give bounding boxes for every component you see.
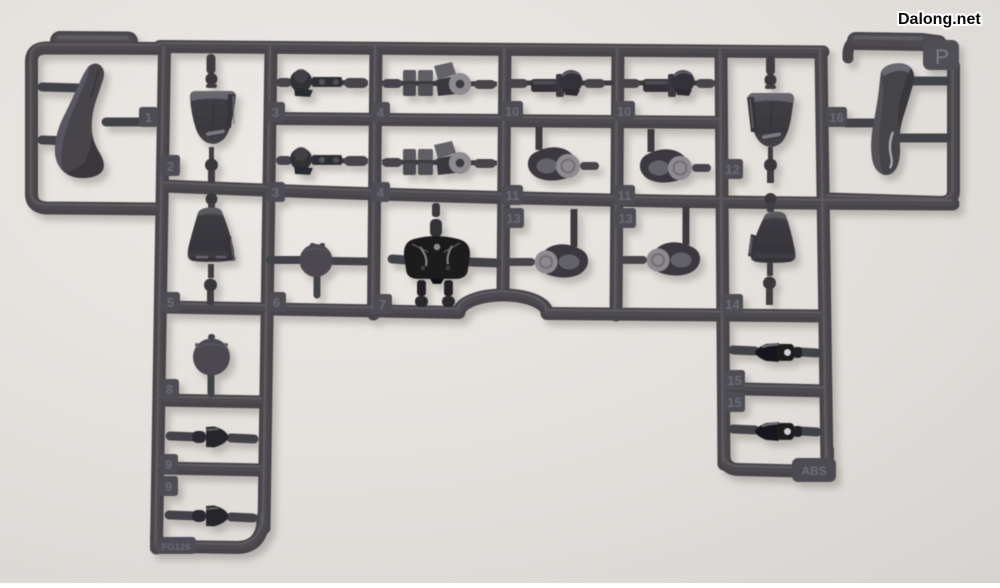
svg-text:8: 8 (166, 382, 173, 397)
svg-text:11: 11 (506, 188, 520, 203)
svg-text:11: 11 (618, 188, 632, 203)
svg-text:P: P (935, 46, 949, 69)
svg-text:ABS: ABS (801, 464, 826, 478)
svg-text:4: 4 (377, 105, 385, 120)
svg-text:2: 2 (167, 159, 174, 174)
svg-text:3: 3 (272, 105, 279, 120)
svg-text:15: 15 (727, 373, 741, 388)
svg-text:13: 13 (618, 211, 632, 226)
svg-text:13: 13 (506, 211, 520, 226)
svg-text:10: 10 (617, 104, 631, 119)
svg-text:9: 9 (165, 457, 172, 472)
svg-text:Dalong.net: Dalong.net (898, 11, 981, 28)
svg-text:1: 1 (145, 110, 152, 125)
svg-text:16: 16 (829, 110, 843, 125)
svg-text:3: 3 (272, 185, 279, 200)
svg-text:15: 15 (727, 395, 741, 410)
svg-text:5: 5 (167, 295, 174, 310)
svg-text:12: 12 (725, 162, 739, 177)
svg-text:6: 6 (273, 295, 280, 310)
svg-text:10: 10 (505, 104, 519, 119)
svg-text:4: 4 (377, 185, 385, 200)
svg-text:7: 7 (379, 297, 386, 312)
svg-text:14: 14 (725, 297, 740, 312)
svg-text:FG126: FG126 (161, 542, 190, 553)
svg-text:9: 9 (165, 479, 172, 494)
